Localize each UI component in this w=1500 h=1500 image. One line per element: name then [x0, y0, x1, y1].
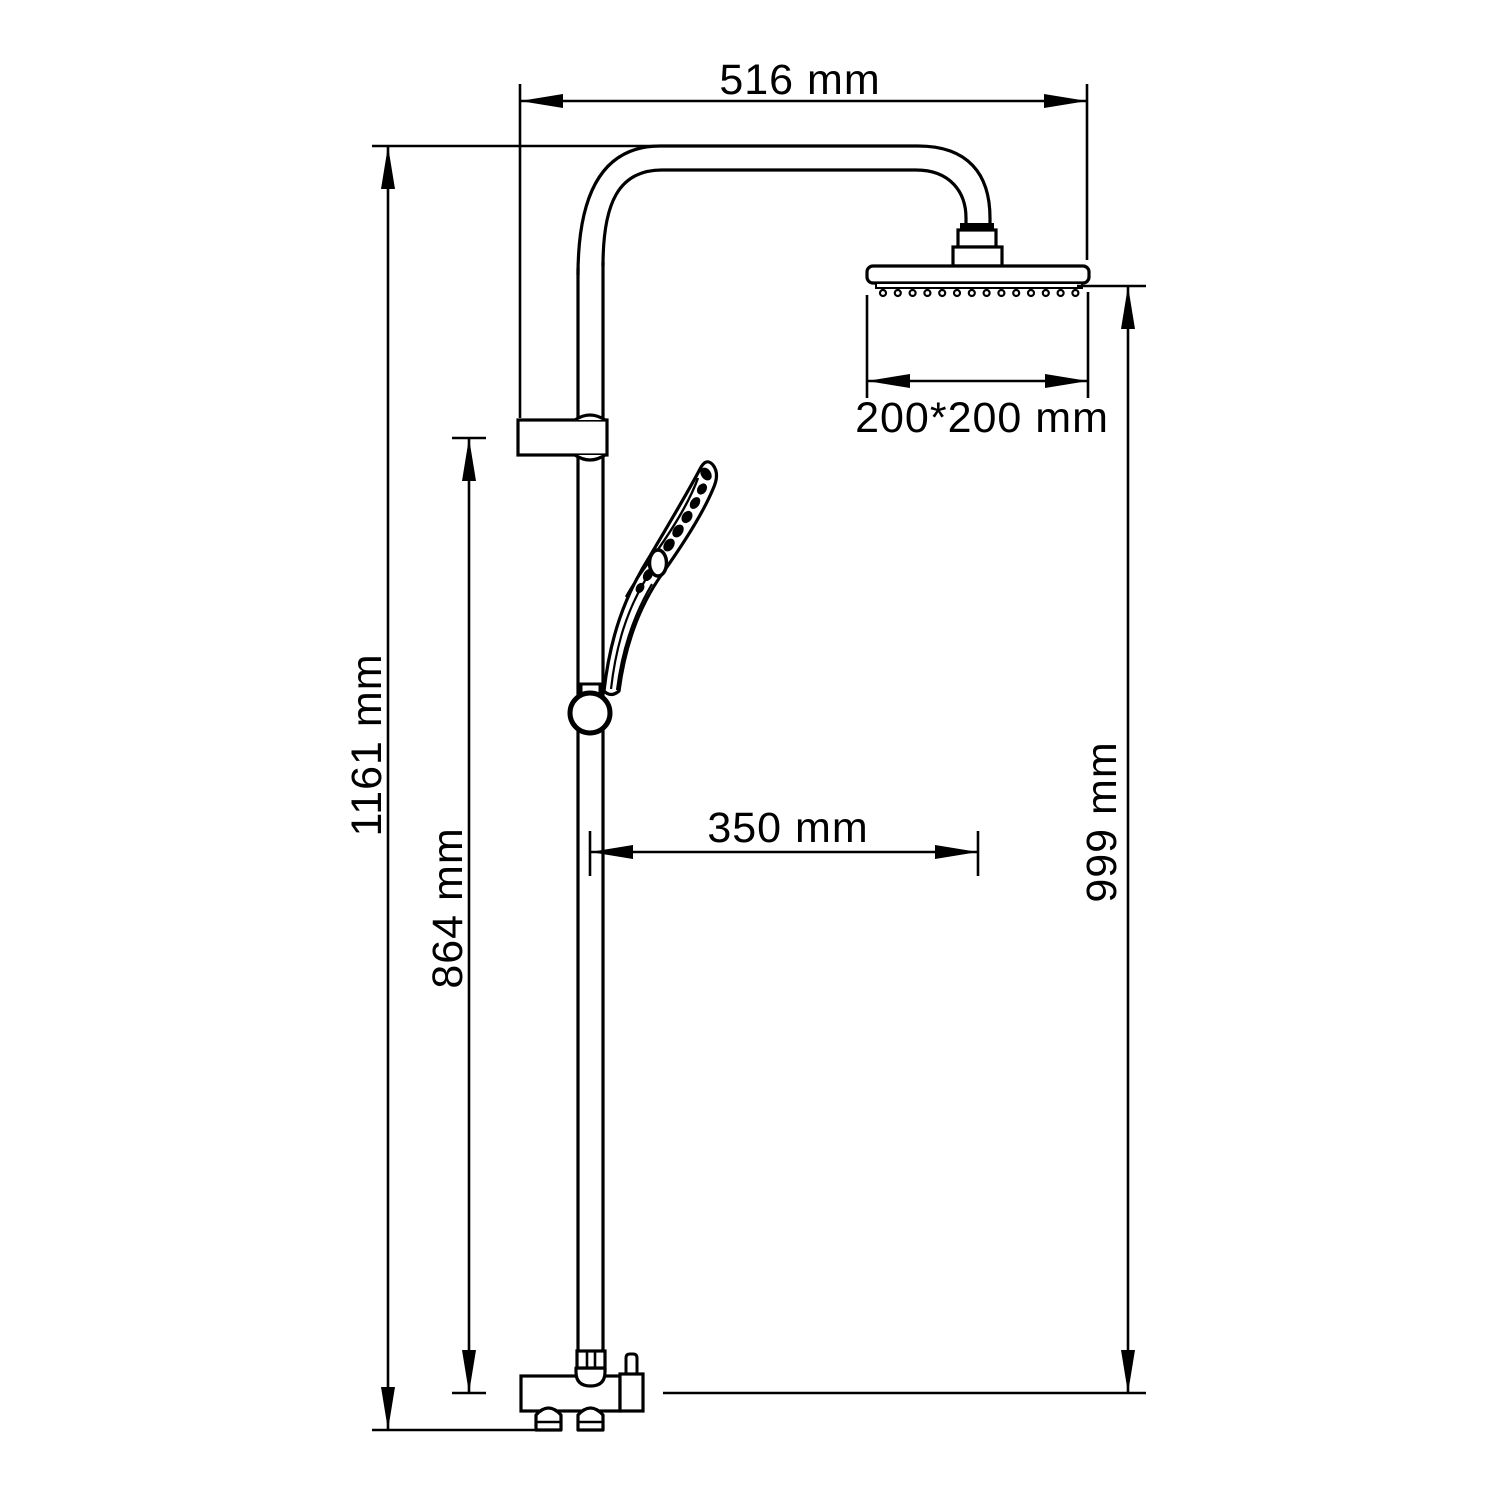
dim-label-bar-height: 864 mm [424, 827, 472, 988]
arrowhead-up [1121, 286, 1135, 329]
arrowhead-up [381, 146, 395, 189]
arrowhead-down [1121, 1350, 1135, 1393]
dimension-head-size: 200*200 mm [855, 292, 1109, 442]
head-connector [953, 223, 1002, 266]
head-plate [867, 266, 1089, 283]
dimension-handshower-offset: 350 mm [590, 804, 978, 876]
arrowhead-up [462, 438, 476, 481]
hand-shower-hanging-ring [650, 550, 667, 576]
connector-nut [958, 230, 996, 247]
mixer-foot-left [536, 1408, 561, 1430]
overhead-shower-head [867, 266, 1089, 296]
dimension-overall-height: 1161 mm [343, 146, 662, 1430]
arrowhead-left [520, 94, 563, 108]
arrowhead-down [381, 1387, 395, 1430]
mixer-right-block [620, 1374, 643, 1411]
dim-label-overall-height: 1161 mm [343, 653, 391, 836]
mixer-nut-dome [576, 1368, 605, 1386]
arrowhead-right [1045, 374, 1088, 388]
head-nozzles [880, 290, 1078, 296]
dim-label-head-size: 200*200 mm [855, 394, 1109, 442]
diverter-knob [626, 1354, 637, 1374]
arrowhead-right [1044, 94, 1087, 108]
hand-shower-spray-dots [634, 465, 714, 594]
bracket-pipe-shoulder-top [575, 415, 605, 420]
shower-arm [578, 146, 990, 275]
dimension-bar-height: 864 mm [424, 438, 486, 1393]
mixer-valve [521, 1351, 643, 1430]
hand-shower [604, 462, 717, 695]
shower-arm-inner-line [603, 170, 966, 266]
dim-label-top-width: 516 mm [719, 56, 880, 104]
mixer-body [521, 1376, 620, 1411]
arrowhead-left [867, 374, 910, 388]
arrowhead-right [935, 845, 978, 859]
shower-system-dimension-drawing: 516 mm 1161 mm 864 mm 999 mm 350 mm [0, 0, 1500, 1500]
dim-label-right-height: 999 mm [1078, 741, 1126, 902]
arrowhead-left [590, 845, 633, 859]
hand-shower-body [604, 462, 717, 695]
mixer-foot-right [578, 1408, 603, 1430]
shower-arm-outer-line [578, 146, 990, 275]
technical-drawing-canvas: 516 mm 1161 mm 864 mm 999 mm 350 mm [0, 0, 1500, 1500]
connector-flange [953, 247, 1002, 266]
mixer-nut [577, 1351, 605, 1368]
dim-label-handshower-offset: 350 mm [707, 804, 868, 852]
arrowhead-down [462, 1350, 476, 1393]
head-lip [876, 283, 1082, 288]
wall-bracket [518, 415, 607, 460]
slider-wheel [570, 693, 610, 733]
bracket-pipe-shoulder-bottom [575, 455, 605, 460]
